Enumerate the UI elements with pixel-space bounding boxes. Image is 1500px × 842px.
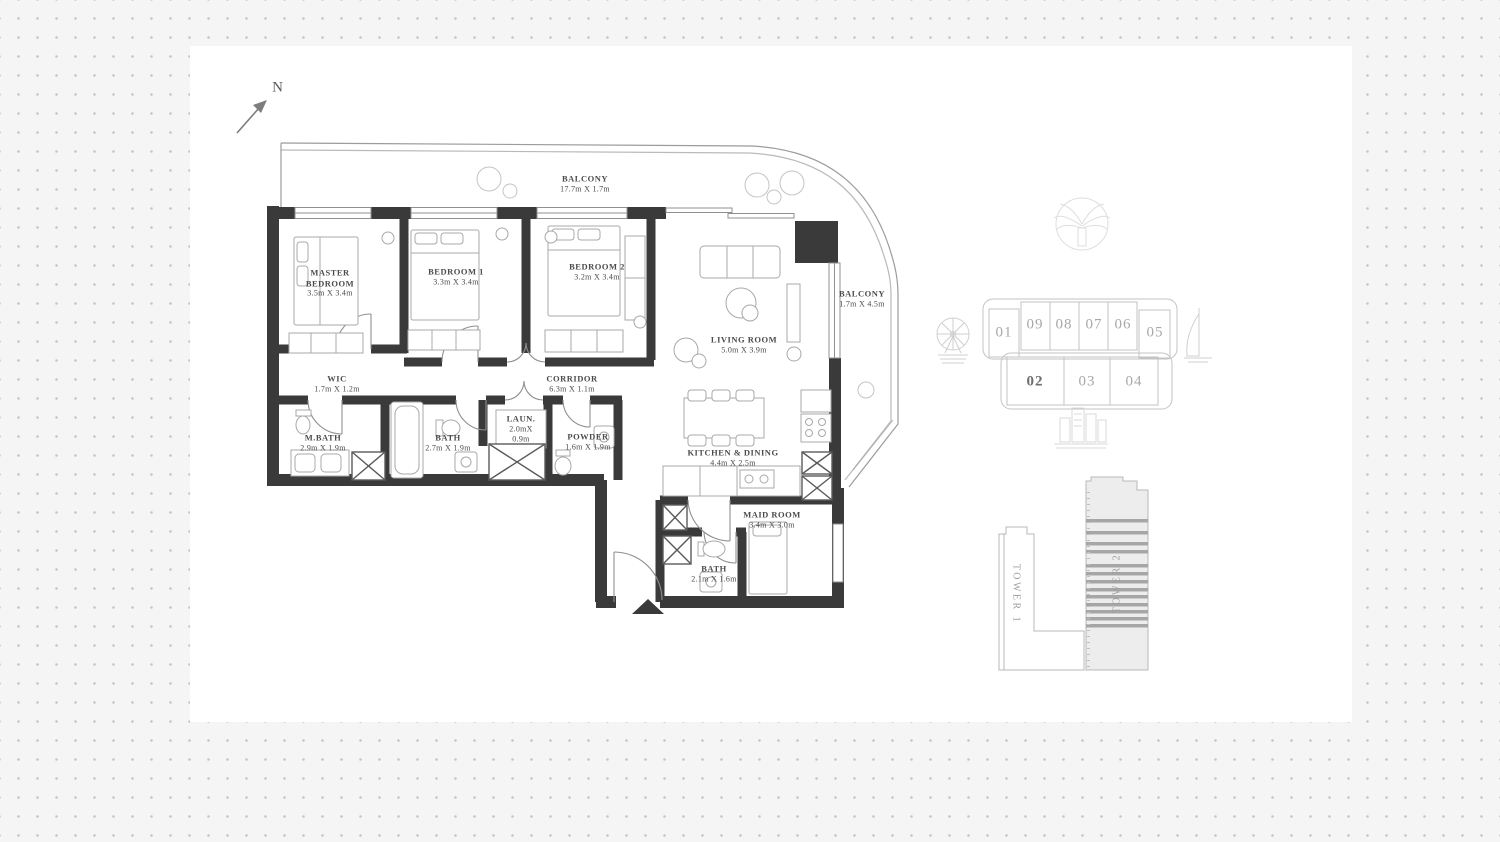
page: N BALCONY 17.7m X 1.7m MASTER BEDROOM 3.… xyxy=(0,0,1500,842)
tower-2-elevation xyxy=(1086,477,1148,670)
tower-1-elevation xyxy=(999,527,1084,670)
floor-plan-drawing xyxy=(0,0,1500,842)
key-plan xyxy=(983,299,1177,409)
furniture xyxy=(289,226,831,594)
palm-island-icon xyxy=(1054,198,1110,250)
balcony-furniture xyxy=(477,167,874,398)
city-skyline-icon xyxy=(1054,408,1108,448)
ferris-wheel-icon xyxy=(937,318,969,363)
wall-block-top-right xyxy=(795,221,838,263)
burj-al-arab-icon xyxy=(1184,308,1212,362)
north-arrow-icon xyxy=(237,100,267,133)
